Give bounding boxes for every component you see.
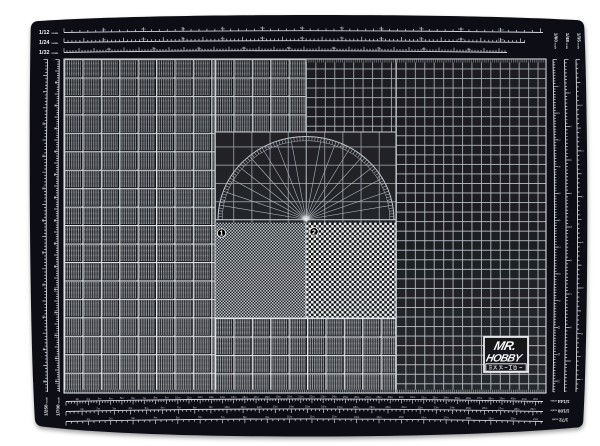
svg-text:80: 80 [53, 242, 57, 246]
svg-text:110: 110 [53, 310, 57, 315]
svg-text:23m: 23m [434, 405, 440, 409]
svg-text:27m: 27m [365, 395, 371, 399]
svg-text:40m: 40m [511, 397, 517, 401]
svg-text:4m: 4m [221, 36, 226, 40]
svg-text:12: 12 [556, 379, 560, 383]
svg-text:15: 15 [41, 154, 45, 158]
svg-text:10m: 10m [458, 27, 464, 31]
svg-text:26m: 26m [354, 395, 360, 399]
svg-text:60: 60 [53, 196, 57, 200]
svg-text:9m: 9m [467, 47, 472, 51]
svg-text:15m: 15m [399, 415, 405, 419]
svg-text:5m: 5m [260, 26, 265, 30]
svg-text:4m: 4m [221, 26, 226, 30]
svg-text:16m: 16m [321, 405, 327, 409]
svg-text:41m: 41m [522, 397, 528, 401]
svg-text:10m: 10m [175, 395, 181, 399]
svg-text:33m: 33m [432, 395, 438, 399]
svg-text:17m: 17m [337, 405, 343, 409]
svg-text:28m: 28m [376, 395, 382, 399]
svg-text:120: 120 [54, 333, 58, 338]
svg-text:8m: 8m [379, 36, 384, 40]
svg-text:6m: 6m [300, 36, 305, 40]
svg-text:19m: 19m [276, 395, 282, 399]
svg-text:1/35 scale: 1/35 scale [577, 33, 582, 50]
svg-text:7m: 7m [377, 46, 382, 50]
svg-text:25m: 25m [343, 395, 349, 399]
svg-text:18m: 18m [466, 416, 472, 420]
svg-text:29m: 29m [388, 395, 394, 399]
svg-text:28m: 28m [514, 407, 520, 411]
svg-text:1/144 scale: 1/144 scale [550, 399, 569, 404]
svg-text:7m: 7m [340, 26, 345, 30]
svg-text:1/60 scale: 1/60 scale [554, 33, 559, 50]
svg-text:1/48 scale: 1/48 scale [565, 33, 570, 50]
svg-text:20m: 20m [287, 395, 293, 399]
svg-text:22m: 22m [309, 395, 315, 399]
svg-text:90: 90 [53, 265, 57, 269]
svg-text:10m: 10m [287, 415, 293, 419]
svg-text:42m: 42m [533, 397, 539, 401]
svg-text:50: 50 [53, 173, 57, 177]
svg-text:21m: 21m [533, 417, 539, 421]
svg-text:1/700 scale: 1/700 scale [55, 397, 60, 416]
svg-text:15m: 15m [305, 405, 311, 409]
svg-text:25m: 25m [466, 406, 472, 410]
svg-text:11: 11 [557, 353, 561, 356]
svg-text:30: 30 [41, 251, 45, 255]
svg-text:7m: 7m [340, 36, 345, 40]
svg-text:9m: 9m [419, 27, 424, 31]
svg-text:40: 40 [42, 315, 46, 319]
svg-text:2m: 2m [141, 37, 146, 41]
svg-text:40: 40 [53, 150, 57, 154]
svg-text:10m: 10m [458, 37, 464, 41]
svg-text:3m: 3m [197, 46, 202, 50]
svg-text:14m: 14m [289, 405, 295, 409]
svg-text:4m: 4m [242, 46, 247, 50]
svg-text:16m: 16m [421, 415, 427, 419]
svg-text:13m: 13m [273, 405, 279, 409]
svg-text:10: 10 [42, 122, 46, 126]
svg-text:19m: 19m [369, 405, 375, 409]
svg-text:14m: 14m [220, 395, 226, 399]
svg-text:31m: 31m [410, 395, 416, 399]
svg-text:22m: 22m [418, 405, 424, 409]
svg-text:25: 25 [41, 219, 45, 223]
svg-text:11m: 11m [498, 38, 504, 42]
svg-text:20m: 20m [385, 405, 391, 409]
svg-text:5m: 5m [260, 36, 265, 40]
svg-text:5m: 5m [287, 46, 292, 50]
svg-text:2m: 2m [141, 27, 146, 31]
svg-text:38m: 38m [488, 396, 494, 400]
svg-text:70: 70 [53, 219, 57, 223]
svg-text:11m: 11m [309, 415, 315, 419]
svg-text:1/72 scale: 1/72 scale [551, 417, 568, 422]
svg-text:1/250 scale: 1/250 scale [44, 397, 49, 416]
svg-text:10: 10 [54, 81, 58, 85]
svg-text:13m: 13m [354, 415, 360, 419]
svg-text:27m: 27m [498, 406, 504, 410]
svg-text:23m: 23m [321, 395, 327, 399]
svg-text:34m: 34m [444, 396, 450, 400]
svg-text:1m: 1m [107, 47, 112, 51]
svg-text:15m: 15m [231, 395, 237, 399]
svg-text:140: 140 [54, 379, 58, 384]
svg-text:11m: 11m [186, 395, 192, 399]
svg-text:8m: 8m [422, 47, 427, 51]
svg-text:30m: 30m [399, 395, 405, 399]
svg-text:130: 130 [54, 356, 58, 361]
svg-text:32m: 32m [421, 395, 427, 399]
svg-text:37m: 37m [477, 396, 483, 400]
svg-text:14m: 14m [376, 415, 382, 419]
svg-text:12m: 12m [198, 395, 204, 399]
svg-text:18m: 18m [265, 395, 271, 399]
svg-text:21m: 21m [401, 405, 407, 409]
svg-text:1/100 scale: 1/100 scale [550, 408, 569, 413]
svg-text:35m: 35m [455, 396, 461, 400]
svg-text:24m: 24m [332, 395, 338, 399]
svg-text:29m: 29m [530, 407, 536, 411]
svg-text:17m: 17m [444, 416, 450, 420]
svg-text:50: 50 [42, 380, 46, 384]
svg-text:36m: 36m [466, 396, 472, 400]
svg-text:8m: 8m [379, 26, 384, 30]
svg-text:1m: 1m [102, 27, 107, 31]
svg-text:24m: 24m [450, 406, 456, 410]
svg-text:16m: 16m [242, 395, 248, 399]
svg-text:1m: 1m [102, 37, 107, 41]
svg-text:45: 45 [42, 347, 46, 351]
svg-text:17m: 17m [253, 395, 259, 399]
svg-text:6m: 6m [300, 26, 305, 30]
svg-text:13m: 13m [209, 395, 215, 399]
svg-text:3m: 3m [181, 27, 186, 31]
svg-text:11m: 11m [241, 405, 247, 409]
svg-text:100: 100 [53, 287, 57, 292]
svg-text:19m: 19m [488, 416, 494, 420]
svg-text:26m: 26m [482, 406, 488, 410]
svg-text:35: 35 [41, 283, 45, 287]
svg-text:39m: 39m [499, 396, 505, 400]
svg-text:18m: 18m [353, 405, 359, 409]
svg-text:10: 10 [557, 326, 561, 330]
svg-text:21m: 21m [298, 395, 304, 399]
svg-text:12m: 12m [332, 415, 338, 419]
svg-text:6m: 6m [332, 46, 337, 50]
svg-text:20: 20 [41, 186, 45, 190]
svg-text:12m: 12m [257, 405, 263, 409]
svg-text:30: 30 [53, 127, 57, 131]
svg-text:9m: 9m [419, 37, 424, 41]
svg-text:2m: 2m [152, 47, 157, 51]
svg-text:3m: 3m [181, 37, 186, 41]
svg-text:11m: 11m [498, 27, 504, 31]
svg-text:10m: 10m [224, 405, 230, 409]
svg-text:20m: 20m [511, 417, 517, 421]
svg-text:20: 20 [54, 104, 58, 108]
